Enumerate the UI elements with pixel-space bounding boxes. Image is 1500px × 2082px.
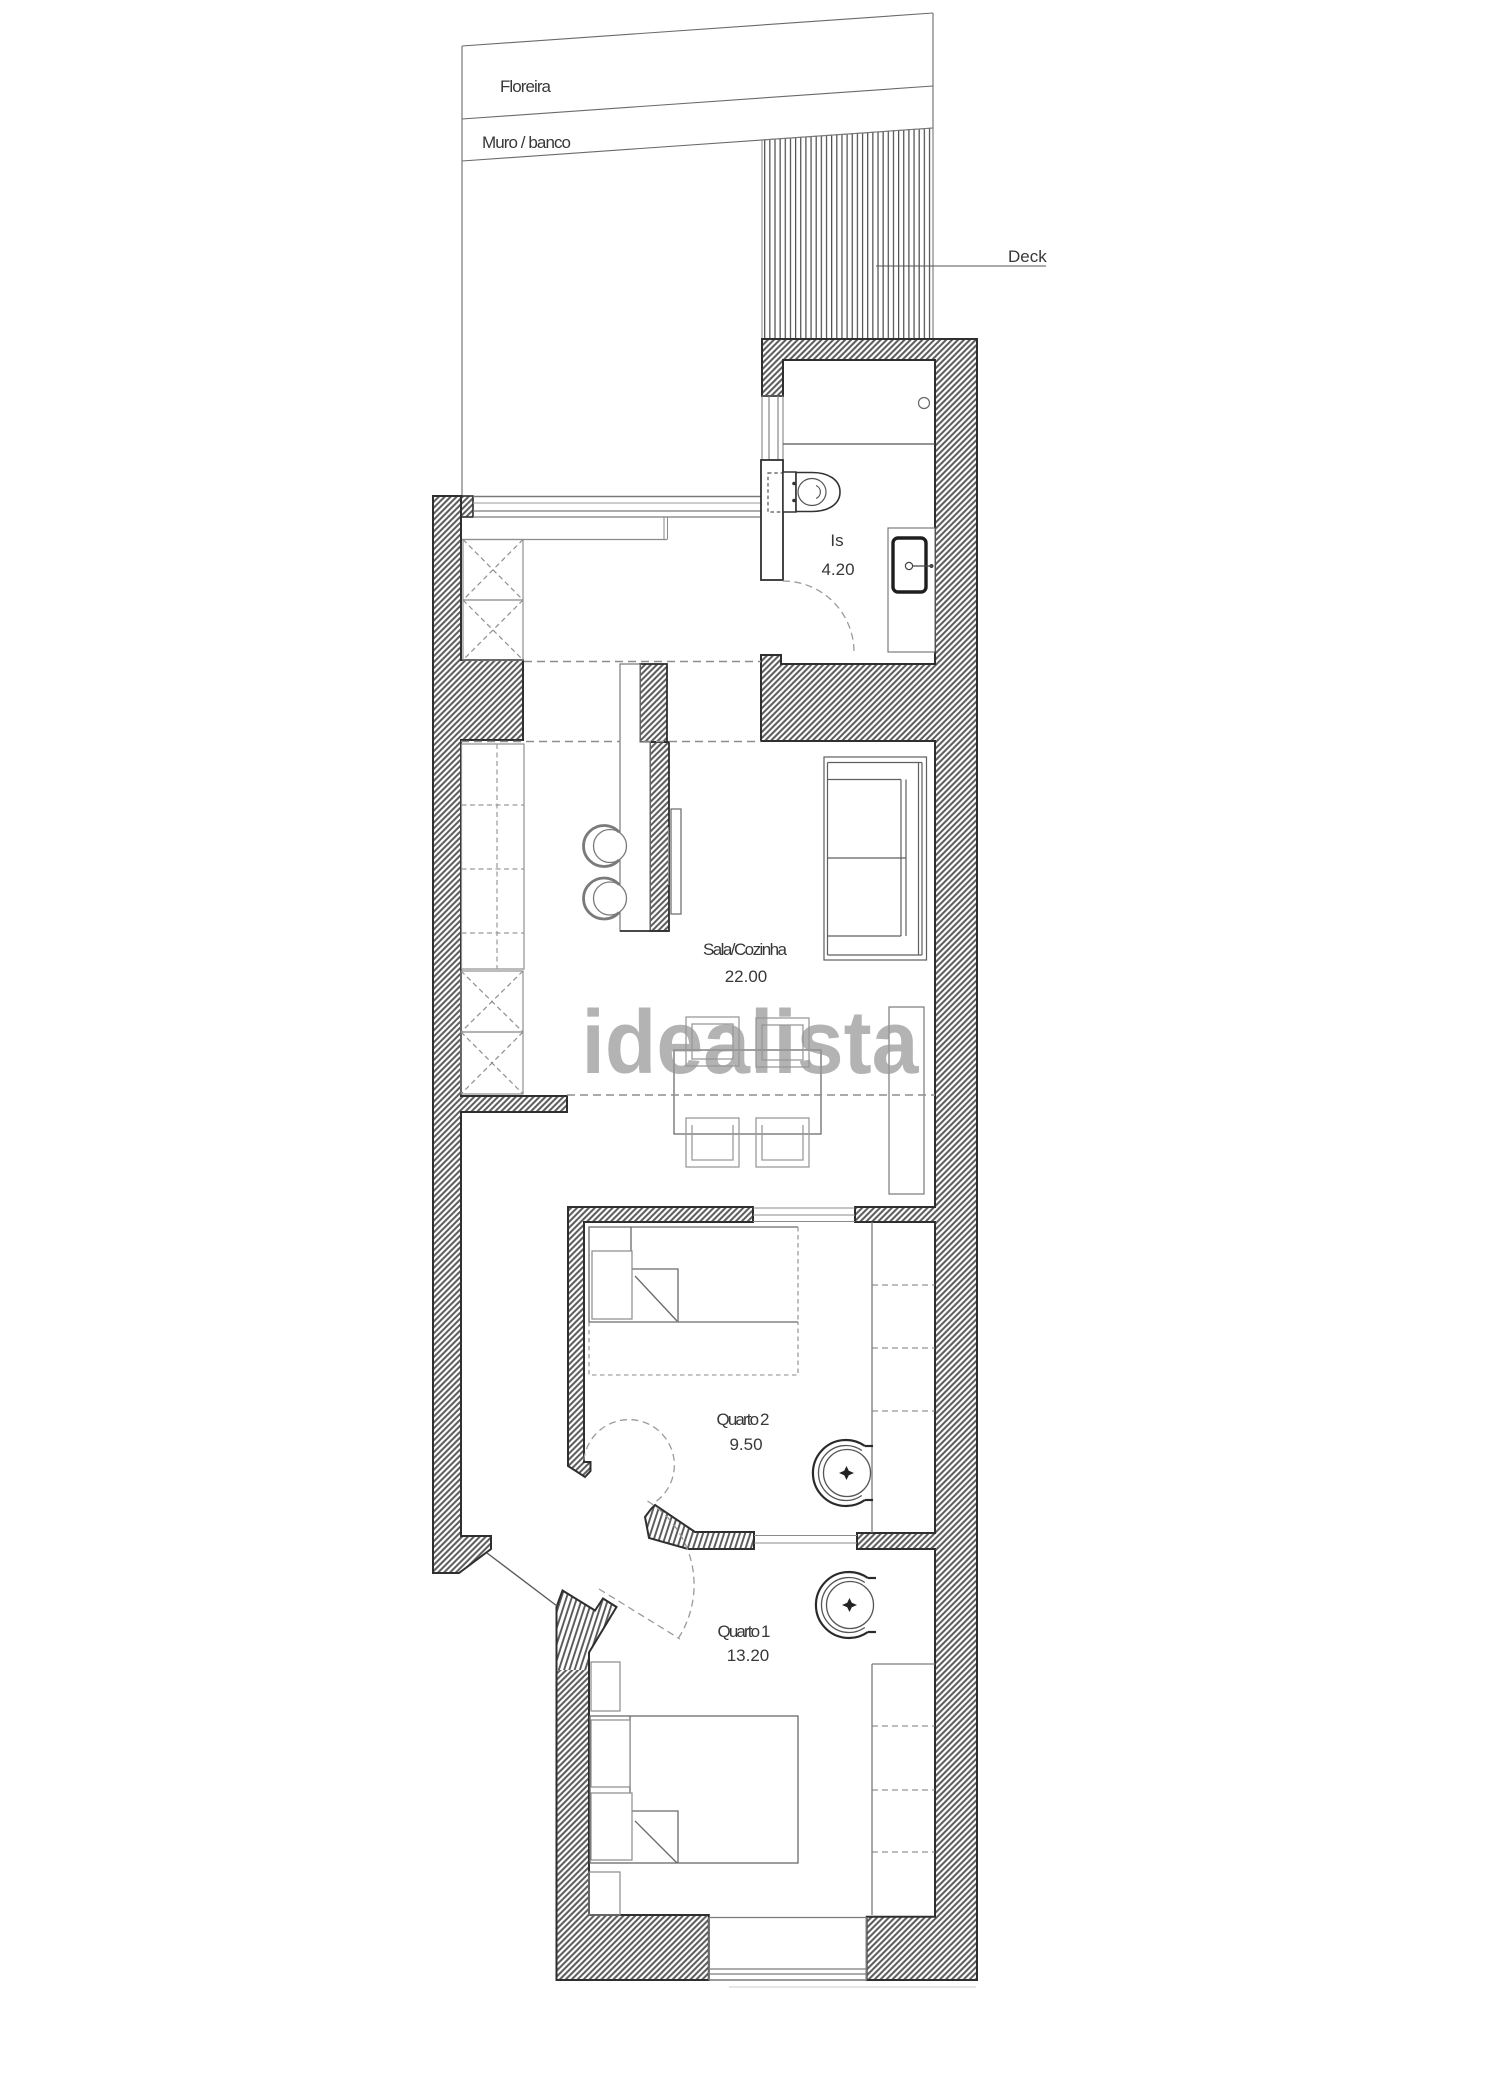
svg-text:Quarto 1: Quarto 1: [718, 1622, 771, 1641]
svg-text:Muro / banco: Muro / banco: [482, 133, 571, 152]
svg-text:Sala/Cozinha: Sala/Cozinha: [703, 940, 788, 959]
svg-text:Deck: Deck: [1008, 247, 1047, 266]
svg-text:Quarto 2: Quarto 2: [717, 1410, 770, 1429]
svg-text:Is: Is: [830, 531, 843, 550]
svg-text:9.50: 9.50: [729, 1435, 762, 1454]
svg-text:Floreira: Floreira: [500, 77, 552, 96]
svg-text:22.00: 22.00: [725, 967, 768, 986]
svg-text:13.20: 13.20: [727, 1646, 770, 1665]
svg-text:4.20: 4.20: [821, 560, 854, 579]
svg-text:idealista: idealista: [582, 993, 920, 1093]
